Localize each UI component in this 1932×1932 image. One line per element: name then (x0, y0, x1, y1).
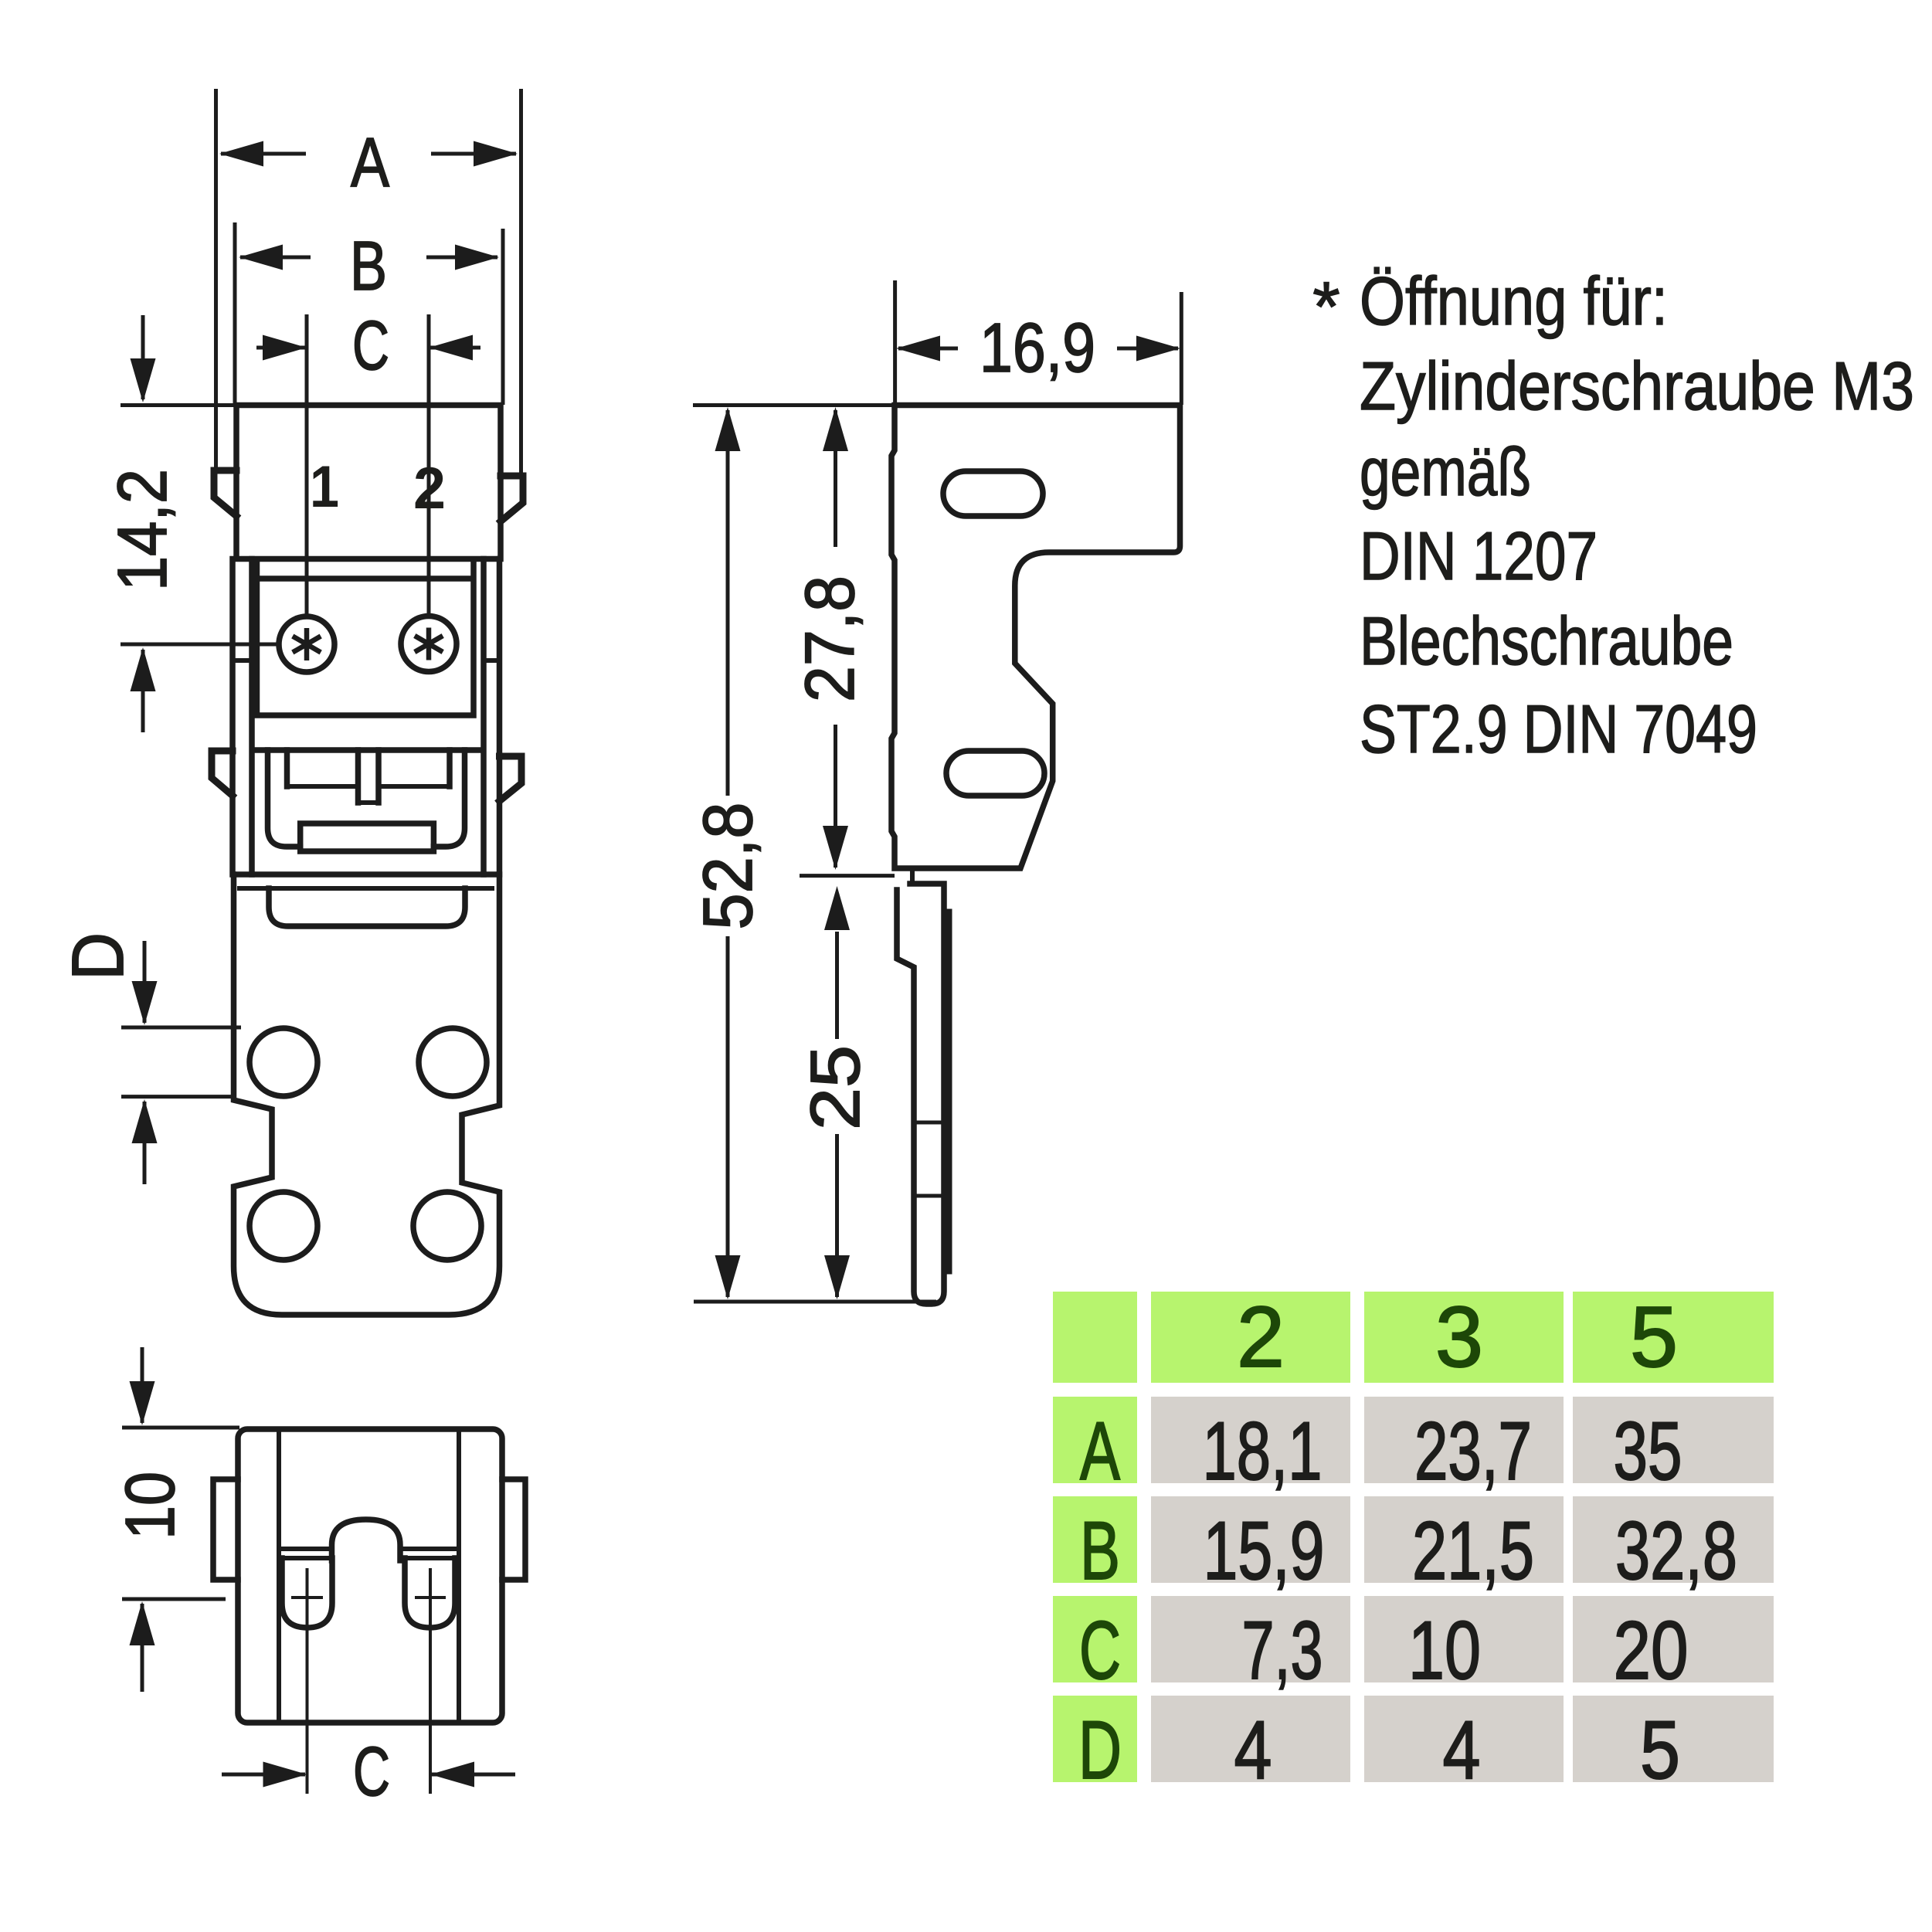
svg-text:gemäß: gemäß (1360, 433, 1531, 510)
svg-text:2: 2 (413, 456, 446, 521)
svg-text:5: 5 (1630, 1289, 1678, 1385)
svg-text:C: C (353, 1733, 390, 1811)
svg-text:4: 4 (1443, 1703, 1481, 1796)
svg-text:25: 25 (797, 1045, 874, 1130)
svg-text:*: * (1312, 268, 1339, 346)
svg-text:52,8: 52,8 (690, 803, 767, 930)
svg-text:7,3: 7,3 (1242, 1604, 1323, 1696)
svg-text:18,1: 18,1 (1203, 1404, 1323, 1497)
svg-text:D: D (57, 932, 139, 980)
svg-text:35: 35 (1614, 1404, 1682, 1497)
svg-text:A: A (1080, 1404, 1120, 1497)
svg-text:2: 2 (1237, 1289, 1285, 1385)
svg-text:10: 10 (1408, 1604, 1481, 1696)
svg-text:23,7: 23,7 (1414, 1404, 1532, 1497)
svg-text:32,8: 32,8 (1615, 1504, 1737, 1597)
svg-text:C: C (352, 307, 389, 385)
svg-text:ST2.9 DIN 7049: ST2.9 DIN 7049 (1360, 691, 1757, 767)
svg-text:20: 20 (1614, 1604, 1689, 1696)
svg-text:16,9: 16,9 (980, 310, 1095, 387)
svg-text:4: 4 (1234, 1703, 1272, 1796)
svg-text:D: D (1078, 1703, 1122, 1796)
svg-text:B: B (350, 228, 387, 305)
svg-text:15,9: 15,9 (1204, 1504, 1325, 1597)
svg-text:27,8: 27,8 (792, 576, 869, 702)
svg-text:Öffnung für:: Öffnung für: (1360, 263, 1668, 339)
svg-text:14,2: 14,2 (104, 469, 182, 591)
svg-text:C: C (1079, 1604, 1121, 1696)
svg-text:1: 1 (310, 454, 339, 520)
svg-text:DIN 1207: DIN 1207 (1360, 518, 1598, 594)
svg-text:A: A (351, 124, 389, 202)
svg-text:Blechschraube: Blechschraube (1360, 603, 1733, 679)
svg-text:5: 5 (1640, 1703, 1680, 1796)
svg-text:3: 3 (1435, 1289, 1483, 1385)
svg-text:21,5: 21,5 (1412, 1504, 1534, 1597)
svg-text:Zylinderschraube M3: Zylinderschraube M3 (1360, 348, 1914, 424)
svg-text:B: B (1080, 1504, 1120, 1597)
svg-text:10: 10 (112, 1472, 189, 1540)
